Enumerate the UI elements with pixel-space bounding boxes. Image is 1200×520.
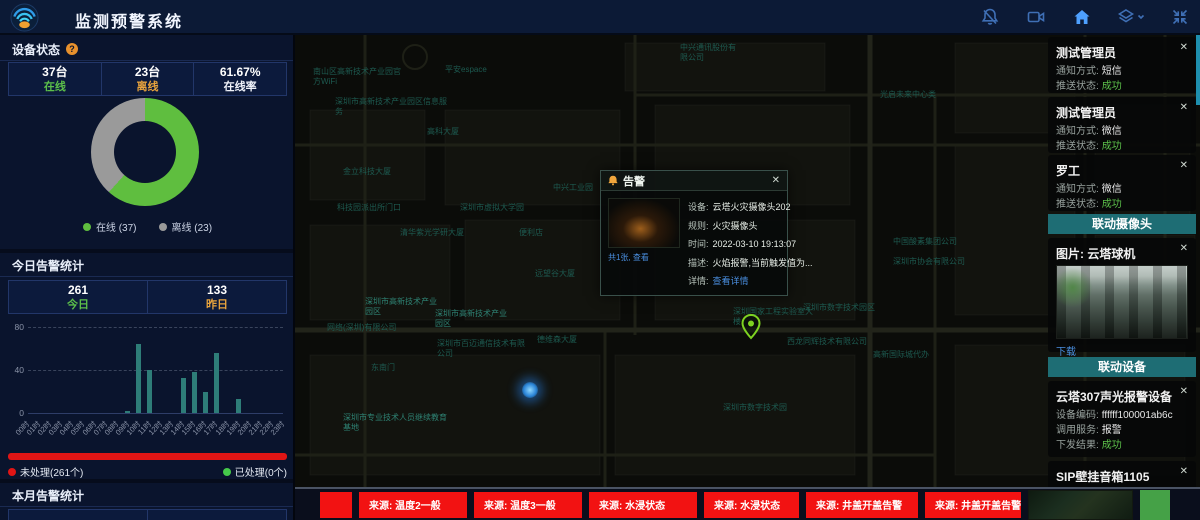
alarm-rule-value: 火灾摄像头 <box>713 221 758 231</box>
linked-device-button[interactable]: 联动设备 <box>1048 357 1196 377</box>
map-place-label: 中兴通讯股份有限公司 <box>680 43 742 63</box>
map-place-label: 清华紫光学研大厦 <box>400 228 510 238</box>
left-sidebar: 设备状态 ? 37台在线 23台离线 61.67%在线率 在线 (37) 离线 … <box>0 35 295 520</box>
alarm-source-tile[interactable]: 来源: 井盖开盖告警 <box>925 492 1021 518</box>
alarm-popup: 告警 ✕ 共1张, 查看 设备:云塔火灾摄像头202 规则:火灾摄像头 时间:2… <box>600 170 788 296</box>
app-logo-icon <box>10 3 39 32</box>
bar <box>192 372 197 413</box>
home-icon[interactable] <box>1070 6 1094 28</box>
alarm-popup-body: 共1张, 查看 设备:云塔火灾摄像头202 规则:火灾摄像头 时间:2022-0… <box>601 191 787 291</box>
map-place-label: 西龙同辉技术有限公司 <box>787 337 869 347</box>
map-place-label: 深圳市数字技术园 <box>723 403 835 413</box>
alarm-snapshot-thumbnail[interactable] <box>608 198 680 248</box>
device-status-stats: 37台在线 23台离线 61.67%在线率 <box>8 62 287 96</box>
alarm-desc-label: 描述: <box>688 258 709 268</box>
y-tick-label: 0 <box>6 408 24 418</box>
alarm-popup-header: 告警 ✕ <box>601 171 787 191</box>
close-icon[interactable]: ✕ <box>1180 244 1188 254</box>
yesterday-count: 133 <box>207 283 227 298</box>
alarm-desc-value: 火焰报警,当前触发值为... <box>713 258 813 268</box>
map-place-label: 中国酸素集团公司 <box>893 237 965 247</box>
notification-card: ✕ 罗工 通知方式:微信 推送状态:成功 <box>1048 155 1196 211</box>
unhandled-progress-bar <box>8 453 287 460</box>
alarm-detail-label: 详情: <box>688 276 709 286</box>
alarm-source-tile[interactable]: 来源: 水浸状态 <box>589 492 697 518</box>
map-place-label: 科技园派出所门口 <box>337 203 447 213</box>
video-camera-icon[interactable] <box>1024 6 1048 28</box>
map-place-label: 深圳市虚拟大学园 <box>460 203 570 213</box>
alarm-time-value: 2022-03-10 19:13:07 <box>713 239 797 249</box>
help-icon[interactable]: ? <box>66 43 78 55</box>
map-place-label: 深圳市高新技术产业园区 <box>365 297 443 317</box>
alarm-source-tile[interactable]: 来源: 井盖开盖告警 <box>806 492 918 518</box>
download-link[interactable]: 下载 <box>1056 343 1188 358</box>
bar <box>136 344 141 413</box>
alarm-detail-link[interactable]: 查看详情 <box>713 276 749 286</box>
map-place-label: 深圳市数字技术园区 <box>803 303 881 313</box>
map-place-label: 深圳市协会有限公司 <box>893 257 975 267</box>
close-icon[interactable]: ✕ <box>1180 161 1188 171</box>
bar <box>147 370 152 413</box>
alarm-snapshot-tile[interactable] <box>1028 490 1133 520</box>
y-tick-label: 40 <box>6 365 24 375</box>
alarm-rule-label: 规则: <box>688 221 709 231</box>
map-pin-icon[interactable] <box>740 313 762 341</box>
notification-card: ✕ 测试管理员 通知方式:短信 推送状态:成功 <box>1048 37 1196 93</box>
unhandled-label: 未处理(261个) <box>20 464 83 479</box>
camera-image-title: 图片: 云塔球机 <box>1056 245 1188 262</box>
map-place-label: 南山区高新技术产业园官方WiFi <box>313 67 407 87</box>
online-rate: 61.67% <box>220 65 261 80</box>
map-place-label: 平安espace <box>445 65 525 75</box>
push-status: 成功 <box>1102 199 1122 210</box>
close-icon[interactable]: ✕ <box>1180 387 1188 397</box>
notification-card: ✕ 测试管理员 通知方式:微信 推送状态:成功 <box>1048 97 1196 153</box>
device-status-header: 设备状态 ? <box>0 40 295 58</box>
fullscreen-icon[interactable] <box>1168 6 1192 28</box>
map-place-label: 深圳市高新技术产业园区信息服务 <box>335 97 447 117</box>
alarm-thumb-caption[interactable]: 共1张, 查看 <box>608 252 680 263</box>
map-device-marker[interactable] <box>522 382 538 398</box>
alarm-source-tile[interactable]: 来源: 水浸状态 <box>704 492 799 518</box>
alarm-device-value: 云塔火灾摄像头202 <box>713 202 791 212</box>
alarm-time-label: 时间: <box>688 239 709 249</box>
close-icon[interactable]: ✕ <box>1180 467 1188 477</box>
today-alarms-bar-chart: 0408000时01时02时03时04时05时06时07时08时09时10时11… <box>6 323 289 443</box>
map-place-label: 深圳市百迈通信技术有限公司 <box>437 339 525 359</box>
map-place-label: 高新国际城代办 <box>873 350 965 360</box>
today-alarms-stats: 261今日 133昨日 <box>8 280 287 314</box>
map-place-label: 深圳市高新技术产业园区 <box>435 309 513 329</box>
bar <box>236 399 241 413</box>
alarm-device-label: 设备: <box>688 202 709 212</box>
bar <box>181 378 186 413</box>
header-toolbar <box>978 6 1192 28</box>
linked-camera-card: ✕ 图片: 云塔球机 下载 <box>1048 238 1196 352</box>
map-place-label: 高科大厦 <box>427 127 487 137</box>
bar <box>214 353 219 413</box>
map-place-label: 金立科技大厦 <box>343 167 423 177</box>
linked-device-card: ✕ 云塔307声光报警设备 设备编码:ffffff100001ab6c 调用服务… <box>1048 381 1196 457</box>
month-alarms-header: 本月告警统计 <box>0 486 295 504</box>
header: 监测预警系统 <box>0 0 1200 35</box>
progress-legend: 未处理(261个) 已处理(0个) <box>8 464 287 479</box>
alarm-green-tile[interactable] <box>1140 490 1170 520</box>
push-status: 成功 <box>1102 81 1122 92</box>
today-alarms-header: 今日告警统计 <box>0 256 295 274</box>
bell-off-icon[interactable] <box>978 6 1002 28</box>
map-place-label: 光启未来中心类 <box>880 90 990 100</box>
close-icon[interactable]: ✕ <box>772 176 780 186</box>
close-icon[interactable]: ✕ <box>1180 103 1188 113</box>
map-place-label: 便利店 <box>519 228 569 238</box>
right-edge-strip <box>1196 35 1200 105</box>
gridline <box>28 327 283 328</box>
alarm-bell-icon <box>608 175 618 186</box>
online-count: 37台 <box>42 65 67 80</box>
map-place-label: 网络(深圳)有限公司 <box>327 323 407 333</box>
gridline <box>28 370 283 371</box>
today-count: 261 <box>68 283 88 298</box>
page-title: 监测预警系统 <box>75 8 183 32</box>
push-status: 成功 <box>1102 141 1122 152</box>
map-place-label: 深圳市专业技术人员继续教育基地 <box>343 413 451 433</box>
map-place-label: 德维森大厦 <box>537 335 617 345</box>
offline-count: 23台 <box>135 65 160 80</box>
bar <box>125 411 130 413</box>
camera-snapshot-image[interactable] <box>1056 265 1188 339</box>
layers-icon[interactable] <box>1116 6 1146 28</box>
linked-camera-button[interactable]: 联动摄像头 <box>1048 214 1196 234</box>
device-status-donut-chart <box>91 98 199 206</box>
handled-label: 已处理(0个) <box>235 464 287 479</box>
alarm-source-tile[interactable]: 来源: 温度2一般 <box>359 492 467 518</box>
alarm-ticker-bar: 来源: 温度2一般来源: 温度3一般来源: 水浸状态来源: 水浸状态来源: 井盖… <box>295 487 1200 520</box>
y-tick-label: 80 <box>6 322 24 332</box>
alarm-popup-title: 告警 <box>623 173 767 189</box>
close-icon[interactable]: ✕ <box>1180 43 1188 53</box>
alarm-source-tile[interactable] <box>320 492 352 518</box>
bar <box>203 392 208 414</box>
map-place-label: 东南门 <box>371 363 421 373</box>
month-alarms-stats: 763 1146 <box>8 509 287 520</box>
alarm-source-tile[interactable]: 来源: 温度3一般 <box>474 492 582 518</box>
monitoring-dashboard: 监测预警系统 <box>0 0 1200 520</box>
dispatch-result: 成功 <box>1102 440 1122 451</box>
donut-legend: 在线 (37) 离线 (23) <box>0 219 295 234</box>
